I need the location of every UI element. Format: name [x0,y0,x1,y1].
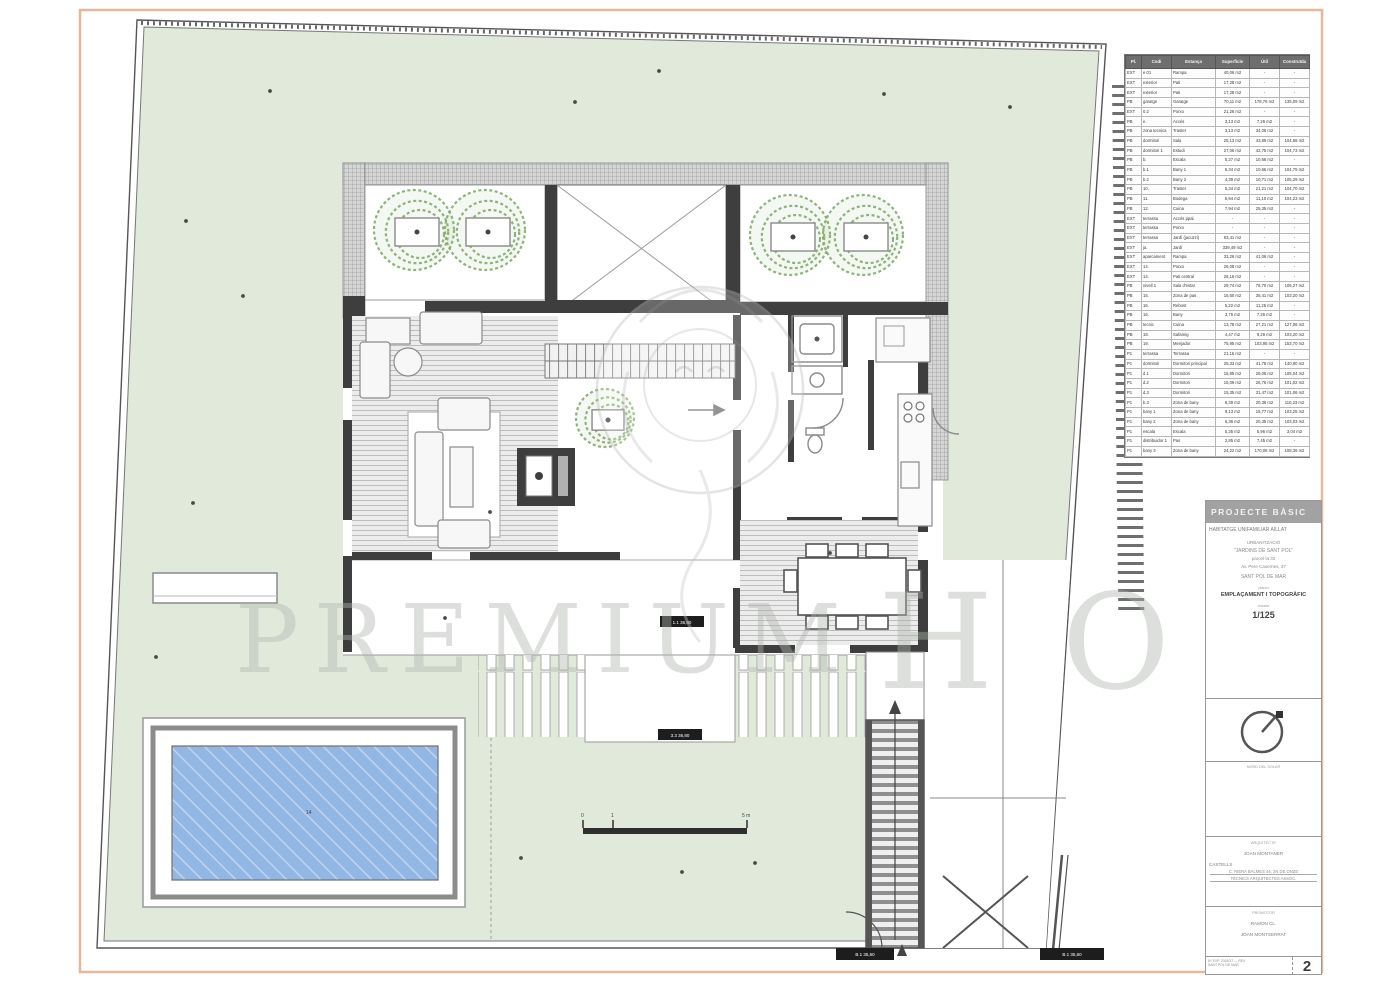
table-row: PBgaratgeGaratge70,11 m2178,76 m2135,09 … [1126,98,1310,108]
tag-gate-left: B.1 35,60 [855,952,875,957]
table-header-cell: Construïda [1280,56,1310,69]
pool-label: 14 [306,810,312,816]
title-block-info: HABITATGE UNIFAMILIAR AÏLLAT URBANITZACI… [1206,523,1321,699]
survey-dot [573,100,577,104]
plan-label: plànol [1209,586,1318,590]
table-row: P1distribuidor 1Pas2,85 m27,45 m2- [1126,437,1310,447]
table-row: EXTe.01Rampa40,06 m2-- [1126,69,1310,79]
table-row: PBtecnicCuina13,78 m227,21 m2127,06 m2 [1126,320,1310,330]
watermark-left: PREMIUM [235,585,855,695]
table-row: EXTterrassaJardí (jacuzzi)93,41 m2-- [1126,233,1310,243]
survey-dot [657,69,661,73]
survey-dot [184,219,188,223]
north-compass-section [1206,699,1321,762]
table-header-cell: Estança [1172,56,1216,69]
table-row: PBb.Escala5,27 m210,66 m2- [1126,156,1310,166]
architect-label: ARQUITECTE [1206,840,1321,845]
table-row: PBb.2Bany 24,39 m210,71 m2105,29 m2 [1126,175,1310,185]
table-row: P1terrassaTerrassa21,16 m2-- [1126,349,1310,359]
scale-5m: 5 m [742,813,750,819]
title-block-footer: Nº EXP. 2016/37 — REV SANT POL DE MAR 2 [1206,957,1321,975]
city: SANT POL DE MAR [1209,574,1318,580]
table-row: PB11.Bodega5,94 m211,10 m2104,23 m2 [1126,194,1310,204]
table-row: PBdormitoriSala25,13 m243,89 m2104,68 m2 [1126,136,1310,146]
table-row: EXTexteriorPati17,28 m2-- [1126,88,1310,98]
scale-label: escala [1209,604,1318,608]
fireplace [517,448,575,506]
urbanitzacio-name: "JARDINS DE SANT POL" [1209,548,1318,554]
table-row: P1bany 1Zona de bany9,13 m215,77 m2103,2… [1126,408,1310,418]
table-row: P1dormitoriDormitori principal25,33 m241… [1126,359,1310,369]
survey-dot [828,551,832,555]
scale-0: 0 [581,813,584,819]
north-compass-icon [1236,702,1292,758]
tree [445,190,525,270]
survey-dot [680,870,684,874]
address: Av. Pere Casernes, 37 [1209,564,1318,569]
rooms-table-body: EXTe.01Rampa40,06 m2--EXTexteriorPati17,… [1126,69,1310,457]
survey-dot [1008,105,1012,109]
table-row: EXTexteriorPati17,28 m2-- [1126,78,1310,88]
survey-dot [191,501,195,505]
survey-dot [753,861,757,865]
architect-name: JOAN MONTANER [1206,851,1321,856]
footer-line2: SANT POL DE MAR [1208,963,1290,967]
table-row: PB15.Zona de pas15,60 m236,41 m2103,20 m… [1126,291,1310,301]
architect-line2: C. RIERA BALMES 44, 2N DE ONZE [1210,869,1317,875]
table-row: PB16.Bany3,75 m27,26 m2- [1126,311,1310,321]
table-row: EXTterrassaAccés ppal.--- [1126,214,1310,224]
urbanitzacio-label: URBANITZACIÓ [1209,540,1318,545]
table-row: PB10.Traster5,34 m221,21 m2104,70 m2 [1126,185,1310,195]
table-row: PBb.1Bany 15,34 m210,66 m2104,75 m2 [1126,165,1310,175]
table-row: PB18.Safareig4,47 m29,26 m2103,20 m2 [1126,330,1310,340]
north-caption: NORD DEL SOLAR [1247,765,1280,769]
title-block: PROJECTE BÀSIC HABITATGE UNIFAMILIAR AÏL… [1205,500,1322,975]
title-block-header: PROJECTE BÀSIC [1206,501,1321,523]
survey-dot [241,294,245,298]
architect-line1: CASTELLS [1206,862,1321,867]
tree [750,195,830,275]
table-header-cell: Codi [1142,56,1172,69]
table-row: PBe.Accés3,13 m27,26 m2- [1126,117,1310,127]
table-row: P1d.1Dormitori15,85 m229,06 m2105,04 m2 [1126,369,1310,379]
table-row: PBdormitori 1Estudi27,06 m242,75 m2104,7… [1126,146,1310,156]
table-header-row: Pl.CodiEstançaSuperfícieÚtilConstruïda [1126,56,1310,69]
tag-gate-right: B.1 35,60 [1062,952,1082,957]
table-row: EXTja.Jardí339,49 m2-- [1126,243,1310,253]
tree [374,190,454,270]
table-row: PB19.Menjador75,95 m2103,95 m2153,70 m2 [1126,340,1310,350]
footer-notes: Nº EXP. 2016/37 — REV SANT POL DE MAR [1206,957,1293,975]
table-row: P1bany 2Zona de bany6,36 m220,35 m2103,0… [1126,417,1310,427]
table-row: PB16.Rebost5,22 m211,26 m2- [1126,301,1310,311]
sheet-number: 2 [1293,957,1321,975]
table-row: EXTaparcamentRampa33,26 m241,06 m2- [1126,253,1310,263]
table-row: P1escalaEscala5,35 m25,96 m23,04 m2 [1126,427,1310,437]
survey-dot [268,89,272,93]
table-row: PBzona tecnicaTraster3,13 m234,06 m2- [1126,127,1310,137]
table-row: P1d.2Dormitori15,09 m226,76 m2101,02 m2 [1126,379,1310,389]
project-client: HABITATGE UNIFAMILIAR AÏLLAT [1209,527,1318,533]
table-header-cell: Superfície [1216,56,1250,69]
table-row: P1b.3Zona de bany6,39 m220,36 m2110,23 m… [1126,398,1310,408]
promotor-section: PROMOTOR RAMON CL. JOAN MONTSERRAT [1206,907,1321,957]
table-row: P1d.3Dormitori15,35 m231,47 m2101,06 m2 [1126,388,1310,398]
tree [823,195,903,275]
pool-water [172,746,438,880]
parcela: parcel·la 32 [1209,556,1318,561]
promotor-name1: RAMON CL. [1206,921,1321,926]
survey-dot [154,655,158,659]
swimming-pool: 14 [143,718,465,907]
promotor-label: PROMOTOR [1206,910,1321,915]
table-header-cell: Útil [1250,56,1280,69]
promotor-name2: JOAN MONTSERRAT [1206,932,1321,937]
architect-line3: TÈCNICS ARQUITECTES ASSOC. [1210,876,1317,882]
table-row: P1bany 3Zona de bany24,22 m2170,06 m2108… [1126,446,1310,456]
table-row: EXT14.Porxo26,08 m2-- [1126,262,1310,272]
table-row: PB12.Cuina7,94 m225,35 m2- [1126,204,1310,214]
north-caption-section: NORD DEL SOLAR [1206,762,1321,837]
plan-title: EMPLAÇAMENT I TOPOGRÀFIC [1209,592,1318,598]
table-header-cell: Pl. [1126,56,1142,69]
site-plan-sheet: 14 1.1 36,80 3.3 36,80 B.1 35,60 B.1 35,… [0,0,1400,991]
table-row: EXTterrassaPorxo--- [1126,224,1310,234]
survey-dot [882,92,886,96]
table-row: EXT14.Pati central26,16 m2-- [1126,272,1310,282]
architect-section: ARQUITECTE JOAN MONTANER CASTELLS C. RIE… [1206,837,1321,907]
survey-dot [519,856,523,860]
table-row: PBnivell 1Sala d'estar29,74 m276,70 m210… [1126,282,1310,292]
table-row: EXT0.2Porxo21,26 m2-- [1126,107,1310,117]
room-schedule-table: Pl.CodiEstançaSuperfícieÚtilConstruïda E… [1124,54,1310,458]
scale-value: 1/125 [1209,610,1318,620]
survey-dot [488,510,492,514]
tag-walk: 3.3 36,80 [671,733,690,738]
scale-1: 1 [611,813,614,819]
